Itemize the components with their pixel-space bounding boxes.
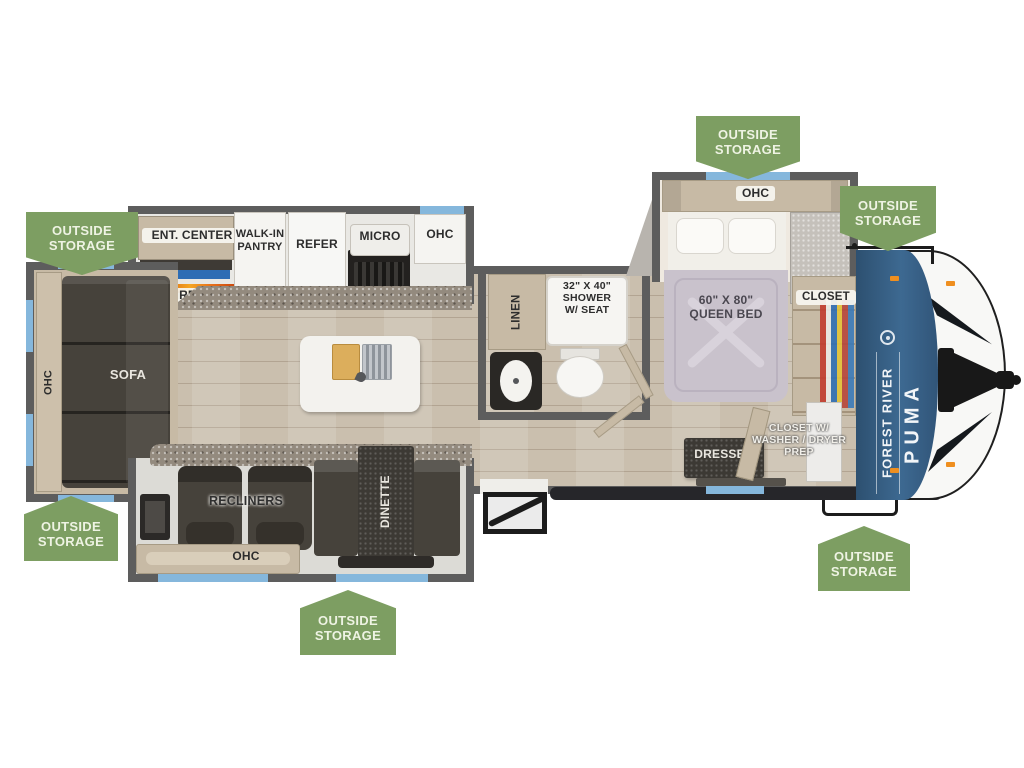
recliner-right-cushion: [256, 522, 304, 546]
shower-label: 32" X 40"SHOWERW/ SEAT: [546, 280, 628, 316]
dinette-step-tray: [338, 556, 434, 568]
pillow-right: [728, 218, 776, 254]
entertainment-center-label: ENT. CENTER: [142, 228, 242, 243]
stove-grate: [354, 262, 404, 286]
bottom-window-left: [158, 574, 268, 582]
outside-storage-badge-bedroom-top: OUTSIDESTORAGE: [696, 116, 800, 179]
kitchen-counter: [168, 286, 472, 310]
front-bracket-drop: [931, 246, 934, 264]
linen-label: LINEN: [488, 274, 546, 350]
dinette-label: DINETTE: [358, 446, 414, 558]
floorplan-canvas: ENT. CENTER FIREPLACE WALK-INPANTRY REFE…: [0, 0, 1024, 768]
recliners-label: RECLINERS: [178, 494, 314, 508]
walk-in-pantry-label: WALK-INPANTRY: [234, 228, 286, 253]
recliner-left-cushion: [186, 522, 234, 546]
marker-light-bottom-right: [946, 462, 955, 467]
brand-model: PUMA: [900, 356, 926, 490]
toilet-bowl: [556, 356, 604, 398]
main-door-window: [706, 486, 764, 494]
tv-screen-bottom: [145, 501, 165, 533]
bath-sink-drain: [513, 378, 519, 384]
marker-light-top-right: [946, 281, 955, 286]
island-sink: [362, 344, 392, 380]
pillow-left: [676, 218, 724, 254]
dinette-bench-right: [414, 460, 460, 556]
rear-ohc-label: OHC: [36, 272, 62, 492]
outside-storage-badge-front-bottom: OUTSIDESTORAGE: [818, 526, 910, 591]
outside-storage-badge-bottom-center: OUTSIDESTORAGE: [300, 590, 396, 655]
hitch-jack: [938, 348, 954, 412]
refrigerator-label: REFER: [288, 238, 346, 252]
kitchen-window: [420, 206, 464, 214]
hitch-ball-tip: [1011, 375, 1021, 385]
closet-label: CLOSET: [796, 290, 856, 305]
entry-grab-bracket: [822, 500, 898, 516]
refrigerator: [288, 212, 346, 292]
dinette-bench-left: [314, 460, 358, 556]
kitchen-ohc-label: OHC: [414, 228, 466, 242]
brand-logo-dot: [886, 336, 890, 340]
front-bracket-dot-1: [852, 243, 857, 248]
rear-window-left-lower: [26, 414, 33, 466]
wd-closet-label: CLOSET W/WASHER / DRYERPREP: [740, 422, 858, 458]
bedroom-ohc-label: OHC: [736, 186, 775, 201]
bottom-window-right: [336, 574, 428, 582]
sofa-label: SOFA: [96, 368, 160, 383]
rear-window-left-upper: [26, 300, 33, 352]
outside-storage-badge-rear-bottom: OUTSIDESTORAGE: [24, 496, 118, 561]
microwave-label: MICRO: [350, 230, 410, 244]
marker-light-top-left: [890, 276, 899, 281]
bottom-ohc-label: OHC: [216, 550, 276, 564]
closet-clothes: [820, 300, 854, 408]
marker-light-bottom-left: [890, 468, 899, 473]
queen-bed-label: 60" X 80"QUEEN BED: [664, 294, 788, 322]
